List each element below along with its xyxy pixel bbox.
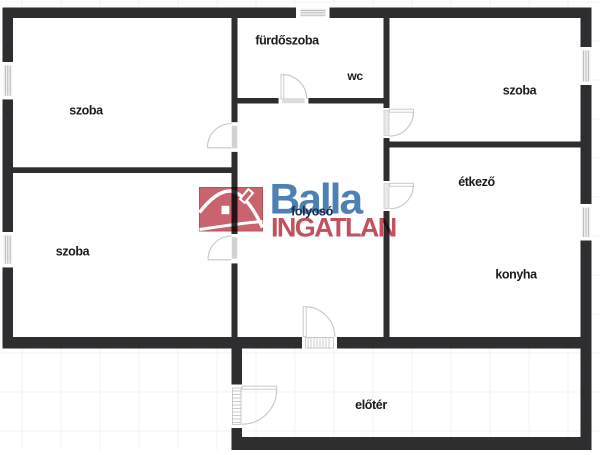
svg-text:konyha: konyha (495, 268, 538, 282)
svg-text:előtér: előtér (355, 398, 387, 412)
svg-text:fürdőszoba: fürdőszoba (255, 34, 320, 48)
svg-text:INGATLAN: INGATLAN (271, 213, 396, 243)
svg-text:étkező: étkező (458, 175, 495, 189)
svg-text:wc: wc (346, 69, 363, 83)
svg-text:szoba: szoba (56, 245, 91, 259)
svg-text:folyosó: folyosó (291, 205, 333, 219)
svg-text:szoba: szoba (69, 104, 104, 118)
svg-text:szoba: szoba (503, 84, 538, 98)
